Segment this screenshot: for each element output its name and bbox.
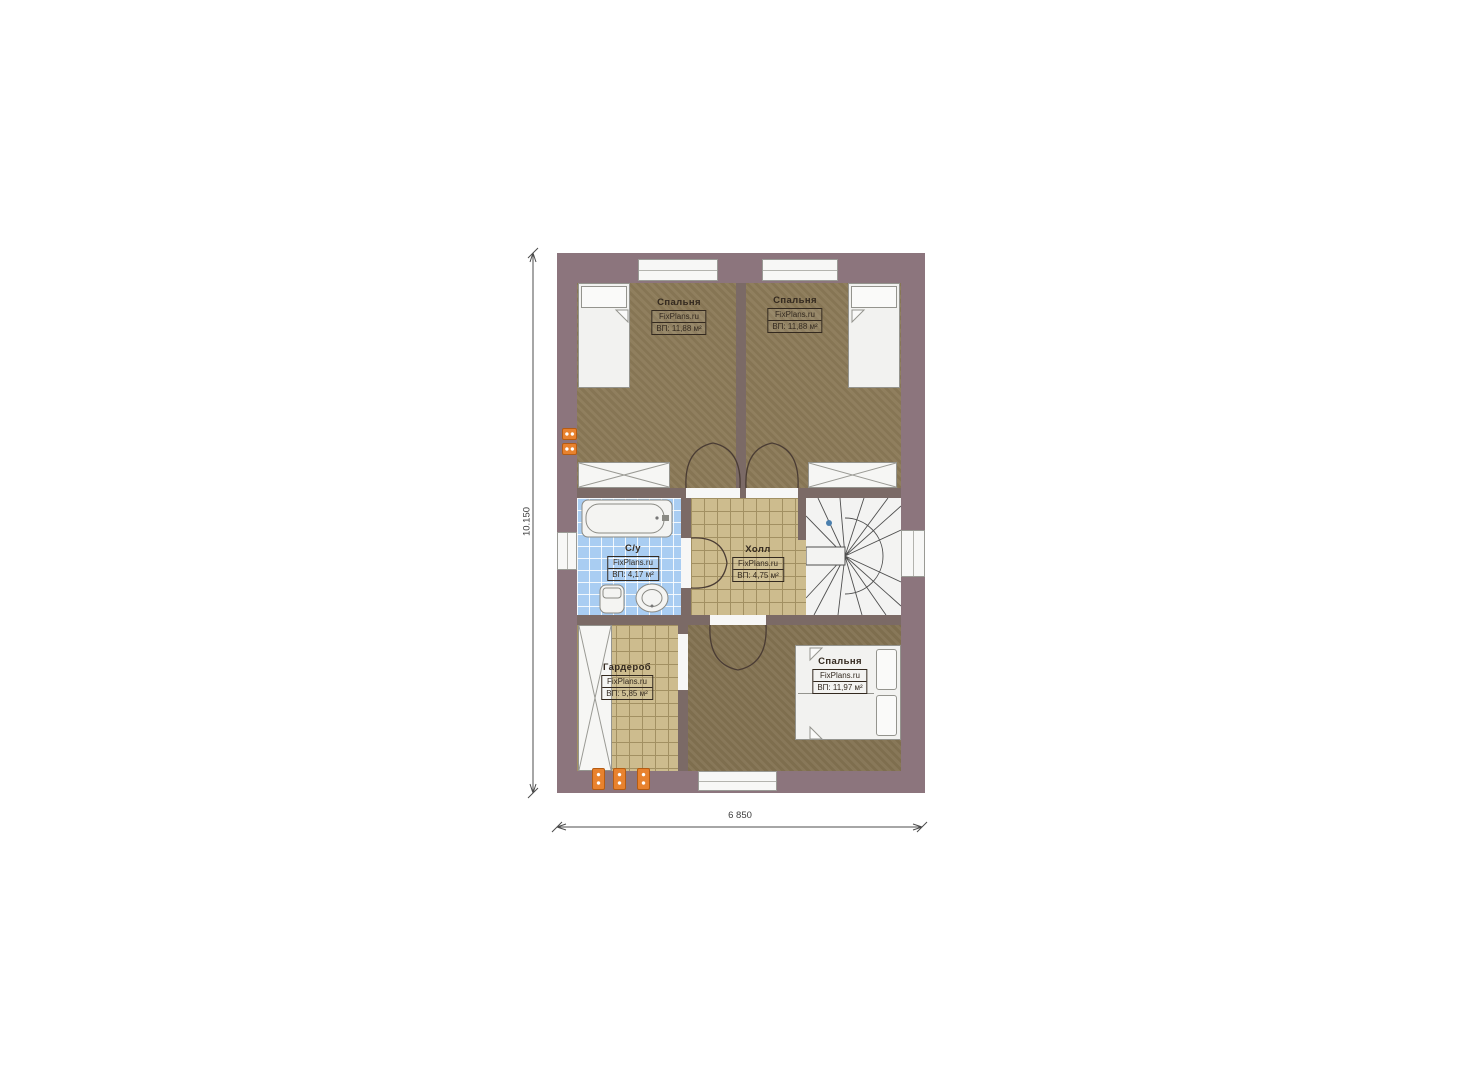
radiator-left-2 xyxy=(562,443,577,455)
room-area: ВП: 11,97 м² xyxy=(813,681,866,693)
radiator-bottom-2 xyxy=(613,768,626,790)
door-opening-bedroom-bottom xyxy=(710,615,766,625)
wall-between-top-bedrooms xyxy=(736,283,746,498)
window-left xyxy=(557,532,577,570)
wall-left xyxy=(557,253,577,793)
door-opening-bedroom-top-left xyxy=(686,488,740,498)
room-name: Гардероб xyxy=(603,662,651,673)
dimension-value-vertical: 10.150 xyxy=(522,495,533,549)
bed-single-top-left xyxy=(578,283,630,388)
closet-cross xyxy=(579,463,669,487)
window-top-right xyxy=(762,259,838,281)
bed-fold-mark xyxy=(849,284,901,389)
room-label-hall: Холл FixPlans.ru ВП: 4,75 м² xyxy=(732,544,784,582)
staircase-drawing xyxy=(806,498,901,615)
closet-cross xyxy=(809,463,896,487)
room-label-bedroom-bottom: Спальня FixPlans.ru ВП: 11,97 м² xyxy=(812,656,867,694)
wall-hall-stairs xyxy=(798,498,806,540)
room-info-box: FixPlans.ru ВП: 4,75 м² xyxy=(732,557,784,582)
watermark-text: FixPlans.ru xyxy=(652,311,705,322)
stair-marker-dot xyxy=(826,520,832,526)
watermark-text: FixPlans.ru xyxy=(813,670,866,681)
room-name: Холл xyxy=(745,544,770,555)
window-bottom xyxy=(698,771,777,791)
sink xyxy=(636,584,668,612)
watermark-text: FixPlans.ru xyxy=(602,676,652,687)
watermark-text: FixPlans.ru xyxy=(768,309,821,320)
room-area: ВП: 11,88 м² xyxy=(768,320,821,332)
door-leaf-wardrobe xyxy=(678,634,688,690)
room-info-box: FixPlans.ru ВП: 11,97 м² xyxy=(812,669,867,694)
bed-fold-mark xyxy=(579,284,631,389)
bathtub xyxy=(582,500,672,537)
room-area: ВП: 4,17 м² xyxy=(608,568,658,580)
radiator-bottom-3 xyxy=(637,768,650,790)
floor-plan: Спальня FixPlans.ru ВП: 11,88 м² Спальня… xyxy=(557,253,925,793)
room-label-wardrobe: Гардероб FixPlans.ru ВП: 5,85 м² xyxy=(601,662,653,700)
room-area: ВП: 4,75 м² xyxy=(733,569,783,581)
wall-top xyxy=(557,253,925,283)
window-right xyxy=(901,530,925,577)
room-label-bedroom-top-right: Спальня FixPlans.ru ВП: 11,88 м² xyxy=(767,295,822,333)
room-label-bathroom: С/у FixPlans.ru ВП: 4,17 м² xyxy=(607,543,659,581)
staircase xyxy=(806,498,901,615)
door-opening-bedroom-top-right xyxy=(746,488,798,498)
room-name: Спальня xyxy=(773,295,817,306)
room-name: С/у xyxy=(625,543,641,554)
room-area: ВП: 11,88 м² xyxy=(652,322,705,334)
radiator-bottom-1 xyxy=(592,768,605,790)
door-opening-bathroom xyxy=(681,538,691,588)
watermark-text: FixPlans.ru xyxy=(733,558,783,569)
wall-right xyxy=(901,253,925,793)
floor-plan-canvas: Спальня FixPlans.ru ВП: 11,88 м² Спальня… xyxy=(0,0,1474,1080)
closet-bedroom-top-right xyxy=(808,462,897,488)
watermark-text: FixPlans.ru xyxy=(608,557,658,568)
radiator-left-1 xyxy=(562,428,577,440)
room-info-box: FixPlans.ru ВП: 4,17 м² xyxy=(607,556,659,581)
stair-landing-rail xyxy=(806,547,845,565)
bed-single-top-right xyxy=(848,283,900,388)
room-name: Спальня xyxy=(818,656,862,667)
room-info-box: FixPlans.ru ВП: 11,88 м² xyxy=(651,310,706,335)
room-info-box: FixPlans.ru ВП: 11,88 м² xyxy=(767,308,822,333)
window-top-left xyxy=(638,259,718,281)
dimension-value-horizontal: 6 850 xyxy=(600,810,880,821)
room-label-bedroom-top-left: Спальня FixPlans.ru ВП: 11,88 м² xyxy=(651,297,706,335)
room-name: Спальня xyxy=(657,297,701,308)
closet-bedroom-top-left xyxy=(578,462,670,488)
room-area: ВП: 5,85 м² xyxy=(602,687,652,699)
toilet xyxy=(600,585,624,613)
room-info-box: FixPlans.ru ВП: 5,85 м² xyxy=(601,675,653,700)
